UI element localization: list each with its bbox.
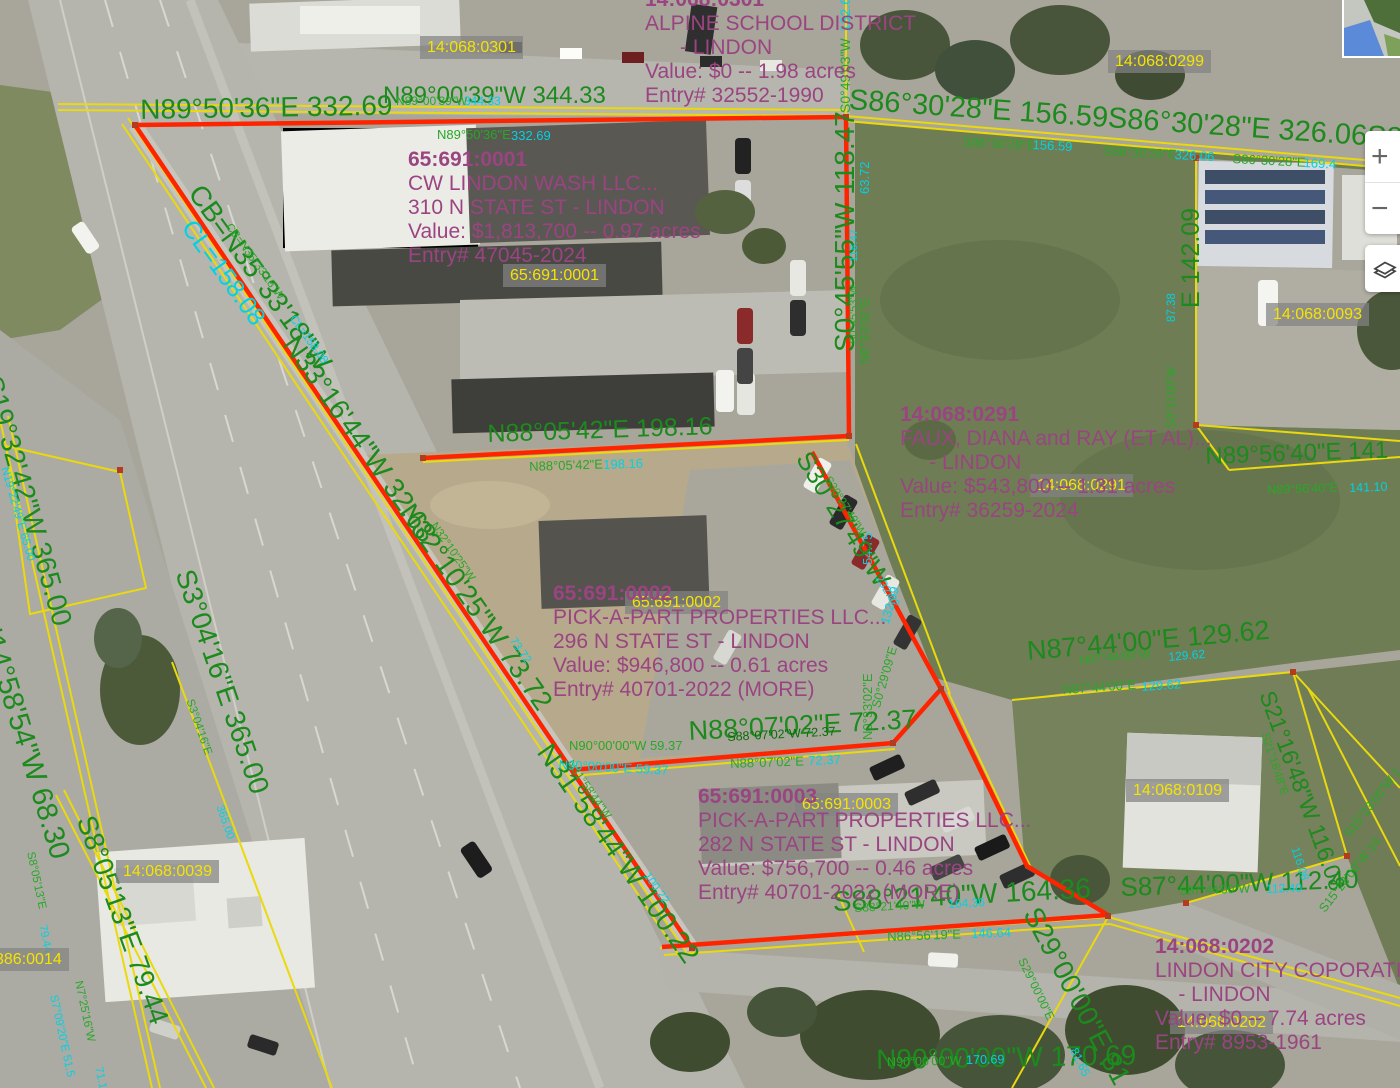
dimension-label: S29°00'00"E (1016, 956, 1056, 1022)
dimension-label: 141.10 (1349, 481, 1388, 495)
parcel-id-label: 14:068:0109 (1126, 779, 1229, 802)
dimension-label: N31°58'44"W 100.22 (532, 739, 704, 968)
parcel-info-line: 14:068:0291 (900, 403, 1212, 427)
parcel-info-block: 65:691:0002PICK-A-PART PROPERTIES LLC...… (553, 582, 886, 702)
dimension-label: S30°27'49"W (792, 447, 895, 591)
dimension-label: 332.69 (511, 129, 551, 142)
dimension-label: N90°00'00"W (887, 1055, 962, 1069)
parcel-info-line: 310 N STATE ST - LINDON (408, 196, 701, 220)
dimension-label: N90°00'00"E 59.37 (558, 758, 668, 777)
dimension-label: N32°10'25"W 73.72 (394, 499, 557, 715)
parcel-info-line: 282 N STATE ST - LINDON (698, 833, 1031, 857)
dimension-label: 118.47 (849, 229, 860, 262)
dimension-label: S88°07'02"W 72.37 (727, 725, 836, 743)
parcel-info-line: - LINDON (645, 36, 916, 60)
parcel-info-line: PICK-A-PART PROPERTIES LLC... (698, 809, 1031, 833)
parcel-info-line: PICK-A-PART PROPERTIES LLC... (553, 606, 886, 630)
layers-button[interactable] (1365, 245, 1400, 292)
dimension-label: S30°27'49"W (821, 475, 867, 539)
dimension-label: N88°05'42"E (529, 457, 603, 473)
parcel-info-line: Value: $543,800 -- 1.31 acres (900, 475, 1212, 499)
parcel-info-line: ALPINE SCHOOL DISTRICT (645, 12, 916, 36)
dimension-label: 87.38 (1167, 293, 1179, 322)
dimension-label: CB=N35°33'18"W (183, 180, 336, 376)
parcel-info-line: Entry# 8953-1961 (1155, 1031, 1400, 1055)
dimension-label: N90°00'00"W 170.69 (876, 1041, 1136, 1074)
zoom-control: + − (1365, 131, 1400, 234)
dimension-label: S7°09'20"E 51.5 (47, 994, 76, 1078)
dimension-label: S29°00'00"E 81.65 (1018, 903, 1153, 1088)
dimension-label: N19°22'49"E 65.00 (0, 466, 36, 563)
layers-icon (1370, 273, 1400, 288)
dimension-label: N89°50'36"E 332.69 (140, 92, 393, 124)
dimension-label: N87°44'00"E 129.62 (1026, 617, 1271, 665)
overview-inset-thumbnail (1344, 0, 1400, 56)
parcel-info-line: Value: $0 -- 7.74 acres (1155, 1007, 1400, 1031)
parcel-info-line: 296 N STATE ST - LINDON (553, 630, 886, 654)
dimension-label: S8°05'13"E 79.44 (72, 812, 173, 1028)
parcel-info-line: CW LINDON WASH LLC... (408, 172, 701, 196)
parcel-info-block: 65:691:0001CW LINDON WASH LLC...310 N ST… (408, 148, 701, 268)
dimension-label: 365.00 (213, 804, 235, 841)
dimension-label: S3°04'16"E 365.00 (171, 566, 274, 797)
parcel-info-line: 14:068:0301 (645, 0, 916, 12)
dimension-label: N14°58'54"W 68.30 (0, 612, 74, 863)
dimension-label: S86°30'28"E (962, 135, 1036, 152)
dimension-label: S15°23'00"W 1 (1342, 766, 1400, 840)
dimension-label: N88°07'02"E (730, 754, 804, 770)
dimension-label: S19°32'42"W 365.00 (0, 373, 76, 629)
parcel-info-block: 14:068:0301ALPINE SCHOOL DISTRICT - LIND… (645, 0, 916, 108)
dimension-label: N87°44'00"W (1079, 648, 1151, 666)
parcel-info-line: - LINDON (900, 451, 1212, 475)
dimension-label: 73.72 (507, 636, 533, 666)
parcel-info-line: Entry# 40701-2022 (MORE) (698, 881, 1031, 905)
dimension-label: S8°05'13"E (24, 851, 47, 910)
zoom-out-button[interactable]: − (1365, 183, 1400, 234)
dimension-label: 344.33 (464, 95, 501, 107)
dimension-label: CL=158.08 (287, 314, 330, 367)
parcel-info-line: Value: $0 -- 1.98 acres (645, 60, 916, 84)
parcel-info-block: 65:691:0003PICK-A-PART PROPERTIES LLC...… (698, 785, 1031, 905)
parcel-info-line: - LINDON (1155, 983, 1400, 1007)
parcel-info-line: Entry# 47045-2024 (408, 244, 701, 268)
dimension-label: N89°56'40"E (1267, 482, 1338, 497)
dimension-label: N86°56'19"E (887, 927, 961, 943)
dimension-label: 71.16 (92, 1066, 109, 1088)
dimension-label: N32°10'25"W (428, 521, 477, 584)
dimension-label: N88°07'02"E 72.37 (688, 706, 917, 745)
dimension-label: 326.06 (1174, 148, 1214, 163)
dimension-label: N31°58'44"W (564, 759, 613, 822)
dimension-label: E 142.09 (1179, 208, 1204, 308)
dimension-label: S21°16'48"E (1258, 732, 1289, 797)
dimension-label: CB=N35°33'18"W (223, 222, 286, 302)
dimension-label: 129.62 (1141, 677, 1182, 693)
dimension-label: N90°00'00"W 59.37 (569, 739, 682, 752)
parcel-info-block: 14:068:0202LINDON CITY COPORATION... - L… (1155, 935, 1400, 1055)
dimension-label: 81.65 (1068, 1046, 1092, 1078)
parcel-info-line: FAUX, DIANA and RAY (ET AL)... (900, 427, 1212, 451)
parcel-info-line: Value: $756,700 -- 0.46 acres (698, 857, 1031, 881)
parcel-info-block: 14:068:0291FAUX, DIANA and RAY (ET AL)..… (900, 403, 1212, 523)
dimension-label: 116.08 (1288, 846, 1310, 882)
dimension-label: S87°44'00"W 112.40 (1120, 866, 1359, 900)
dimension-label: S86°30'28"E (1103, 144, 1177, 161)
parcel-info-line: 14:068:0202 (1155, 935, 1400, 959)
parcel-id-label: 14:068:0301 (420, 36, 523, 59)
dimension-label: 100.22 (641, 871, 671, 906)
dimension-label: N89°50'36"E (437, 128, 511, 141)
parcel-info-line: Value: $946,800 -- 0.61 acres (553, 654, 886, 678)
parcel-id-label: 14:068:0039 (116, 860, 219, 883)
parcel-info-line: Value: $1,813,700 -- 0.97 acres (408, 220, 701, 244)
overview-inset-map[interactable] (1342, 0, 1400, 58)
dimension-label: S87°44'00"W (1179, 883, 1250, 897)
dimension-label: 72.37 (808, 753, 841, 767)
dimension-label: S86°30'28"E 156.59S86°30'28"E 326.06S86°… (848, 86, 1400, 168)
parcel-info-line: LINDON CITY COPORATION... (1155, 959, 1400, 983)
dimension-label: 129.62 (1168, 648, 1206, 663)
dimension-label: 63.72 (858, 161, 871, 194)
dimension-label: 112.40 (1266, 882, 1302, 895)
dimension-label: N89°00'39"W (396, 95, 467, 107)
dimension-label: N87°44'00"E (1062, 678, 1136, 696)
zoom-in-button[interactable]: + (1365, 131, 1400, 182)
label-layer: N89°50'36"E 332.69N89°00'39"W 344.33N89°… (0, 0, 1400, 1088)
dimension-label: N89°00'39"W 344.33 (383, 84, 606, 108)
dimension-label: N7°25'16"W (72, 980, 96, 1043)
dimension-label: S0°45'53"W (849, 285, 860, 344)
dimension-label: S3°04'16"E (183, 698, 213, 757)
dimension-label: 156.59 (1032, 138, 1072, 153)
dimension-label: S0°45'55"W 118.47 (831, 111, 859, 352)
dimension-label: 169.4 (1303, 156, 1336, 171)
parcel-info-line: Entry# 40701-2022 (MORE) (553, 678, 886, 702)
dimension-label: CL=158.08 (177, 216, 270, 330)
parcel-id-label: 14:068:0093 (1266, 303, 1369, 326)
dimension-label: 54.75 (861, 532, 874, 565)
dimension-label: 170.69 (966, 1053, 1004, 1066)
parcel-info-line: Entry# 32552-1990 (645, 84, 916, 108)
parcel-info-line: 65:691:0002 (553, 582, 886, 606)
parcel-id-label: 386:0014 (0, 948, 69, 971)
dimension-label: S86°30'28"E (1232, 152, 1306, 169)
map-viewport[interactable]: N89°50'36"E 332.69N89°00'39"W 344.33N89°… (0, 0, 1400, 1088)
dimension-label: 146.64 (971, 926, 1011, 940)
parcel-info-line: Entry# 36259-2024 (900, 499, 1212, 523)
dimension-label: S21°16'48"W 116.08 (1255, 688, 1349, 894)
parcel-id-label: 14:068:0299 (1108, 50, 1211, 73)
dimension-label: N0°33'02"E (858, 297, 871, 364)
dimension-label: 198.16 (603, 457, 643, 471)
dimension-label: S15°23'00"W 14 (1317, 835, 1383, 914)
dimension-label: N88°05'42"E 198.16 (487, 414, 713, 447)
dimension-label: N89°56'40"E 141 (1205, 439, 1389, 469)
dimension-label: N33°16'44"W 32.68 (278, 331, 441, 547)
parcel-info-line: 65:691:0001 (408, 148, 701, 172)
parcel-info-line: 65:691:0003 (698, 785, 1031, 809)
